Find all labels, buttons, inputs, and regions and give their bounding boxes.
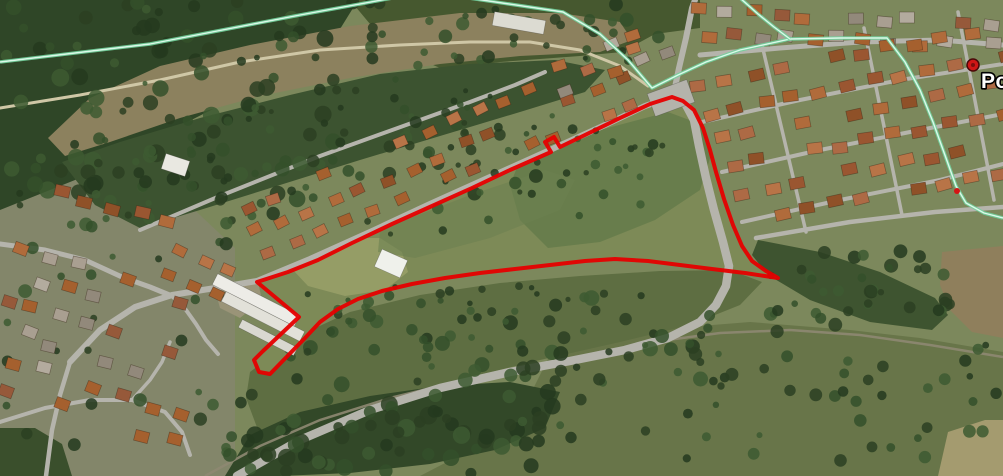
tree: [362, 447, 375, 460]
tree: [913, 250, 926, 263]
tree: [220, 237, 233, 250]
tree: [524, 458, 539, 473]
tree: [636, 200, 644, 208]
tree: [31, 163, 42, 174]
tree: [791, 300, 798, 307]
tree: [591, 160, 601, 170]
tree: [410, 116, 422, 128]
tree: [484, 216, 493, 225]
tree: [132, 158, 140, 166]
tree: [605, 348, 612, 355]
tree: [697, 331, 705, 339]
tree: [641, 426, 650, 435]
tree: [584, 290, 600, 306]
tree: [16, 190, 23, 197]
tree: [614, 166, 622, 174]
tree: [340, 128, 348, 136]
tree: [771, 325, 784, 338]
tree: [414, 416, 426, 428]
tree: [757, 432, 763, 438]
tree: [188, 133, 196, 141]
tree: [863, 375, 874, 386]
tree: [333, 422, 343, 432]
tree: [703, 324, 712, 333]
tree: [517, 346, 528, 357]
house: [877, 16, 893, 28]
tree: [416, 298, 426, 308]
tree: [200, 53, 207, 60]
house: [911, 125, 928, 138]
tree: [203, 107, 220, 124]
tree: [245, 463, 257, 475]
tree: [504, 369, 517, 382]
house: [759, 95, 775, 108]
tree: [36, 154, 46, 164]
tree: [582, 45, 591, 54]
tree: [473, 313, 482, 322]
tree: [464, 105, 470, 111]
tree: [456, 17, 469, 30]
tree: [624, 351, 634, 361]
tree: [704, 310, 715, 321]
tree: [223, 448, 237, 462]
tree: [211, 165, 225, 179]
tree: [155, 8, 163, 16]
tree: [365, 41, 377, 53]
tree: [276, 40, 288, 52]
tree: [476, 8, 487, 19]
tree: [583, 56, 588, 61]
tree: [194, 65, 209, 80]
house: [991, 168, 1003, 181]
tree: [338, 105, 344, 111]
tree: [781, 350, 793, 362]
tree: [302, 184, 309, 191]
tree: [211, 115, 216, 120]
tree: [312, 455, 326, 469]
tree: [517, 189, 522, 194]
tree: [877, 391, 886, 400]
tree: [442, 414, 451, 423]
tree: [237, 57, 246, 66]
house: [691, 2, 707, 14]
tree: [524, 131, 530, 137]
tree: [834, 454, 847, 467]
house: [884, 126, 900, 139]
tree: [429, 389, 442, 402]
tree: [406, 324, 417, 335]
tree: [234, 167, 248, 181]
tree: [977, 425, 989, 437]
tree: [428, 363, 435, 370]
tree: [854, 414, 867, 427]
tree: [878, 289, 884, 295]
tree: [963, 425, 976, 438]
tree: [674, 368, 682, 376]
tree: [557, 179, 567, 189]
house: [748, 152, 764, 165]
tree: [886, 443, 895, 452]
tree: [355, 171, 365, 181]
tree: [435, 336, 450, 351]
tree: [246, 116, 252, 122]
tree: [86, 398, 98, 410]
tree: [420, 48, 428, 56]
placemark-icon-core: [971, 63, 975, 67]
house: [986, 37, 1002, 49]
house: [798, 201, 815, 214]
tree: [550, 113, 555, 118]
tree: [251, 104, 259, 112]
tree: [335, 138, 345, 148]
tree: [685, 339, 694, 348]
tree: [838, 386, 849, 397]
place-label: Por: [981, 70, 1003, 93]
tree: [451, 98, 458, 105]
tree: [510, 33, 519, 42]
tree: [939, 373, 951, 385]
tree: [14, 95, 29, 110]
tree: [973, 344, 984, 355]
tree: [419, 335, 428, 344]
tree: [544, 398, 561, 415]
tree: [439, 226, 447, 234]
tree: [291, 373, 302, 384]
house: [955, 17, 971, 29]
tree: [352, 87, 359, 94]
house: [689, 80, 705, 93]
tree: [858, 250, 869, 261]
tree: [363, 309, 376, 322]
tree: [79, 11, 93, 25]
tree: [21, 428, 32, 439]
house: [906, 39, 922, 52]
tree: [322, 394, 333, 405]
tree: [619, 313, 631, 325]
tree: [461, 120, 467, 126]
tree: [247, 449, 258, 460]
tree: [414, 378, 422, 386]
tree: [365, 304, 370, 309]
tree: [664, 342, 678, 356]
tree: [563, 169, 571, 177]
tree: [216, 143, 230, 157]
tree: [220, 217, 232, 229]
tree: [73, 42, 82, 51]
tree: [509, 177, 521, 189]
house: [782, 90, 798, 103]
tree: [307, 155, 320, 168]
tree: [288, 436, 304, 452]
tree: [261, 447, 277, 463]
tree: [422, 352, 432, 362]
tree: [275, 425, 285, 435]
tree: [436, 289, 445, 298]
house: [910, 182, 926, 195]
tree: [503, 390, 516, 403]
tree: [725, 368, 738, 381]
tree: [332, 86, 341, 95]
tree: [933, 305, 945, 317]
tree: [576, 212, 583, 219]
house: [716, 74, 733, 87]
tree: [456, 162, 461, 167]
tree: [207, 125, 221, 139]
tree: [488, 94, 493, 99]
tree: [573, 364, 580, 371]
tree: [364, 406, 376, 418]
tree: [280, 155, 292, 167]
tree: [305, 291, 311, 297]
tree: [385, 410, 400, 425]
tree: [269, 109, 274, 114]
house: [873, 102, 889, 115]
tree: [365, 420, 376, 431]
tree: [378, 30, 386, 38]
tree: [759, 364, 769, 374]
tree: [819, 288, 828, 297]
house: [765, 182, 782, 196]
tree: [183, 116, 193, 126]
tree: [702, 432, 711, 441]
tree: [176, 335, 188, 347]
tree: [557, 331, 570, 344]
tree: [923, 383, 933, 393]
tree: [327, 74, 339, 86]
tree: [620, 13, 634, 27]
tree: [894, 244, 908, 258]
tree: [967, 373, 974, 380]
tree: [403, 127, 410, 134]
tree: [807, 275, 816, 284]
tree: [549, 299, 562, 312]
tree: [693, 372, 708, 387]
tree: [580, 328, 587, 335]
tree: [390, 94, 399, 103]
tree: [468, 334, 475, 341]
tree: [3, 402, 11, 410]
tree: [392, 76, 398, 82]
tree: [422, 448, 434, 460]
tree: [336, 459, 353, 476]
tree: [453, 427, 470, 444]
tree: [187, 149, 196, 158]
tree: [451, 52, 458, 59]
tree: [215, 194, 226, 205]
tree: [982, 342, 989, 349]
tree: [463, 88, 468, 93]
house: [901, 96, 918, 109]
tree: [380, 439, 393, 452]
tree: [304, 348, 312, 356]
tree: [504, 419, 516, 431]
tree: [920, 263, 931, 274]
tree: [195, 389, 202, 396]
house: [788, 176, 805, 190]
tree: [593, 373, 605, 385]
map-layers: [0, 0, 1003, 476]
tree: [136, 20, 152, 36]
tree: [833, 285, 844, 296]
tree: [274, 31, 284, 41]
tree: [439, 30, 453, 44]
tree: [287, 187, 296, 196]
house: [969, 113, 986, 126]
tree: [228, 11, 243, 26]
tree: [584, 170, 589, 175]
tree: [445, 286, 454, 295]
tree: [367, 53, 379, 65]
tree: [638, 292, 645, 299]
tree: [86, 221, 98, 233]
tree: [262, 162, 272, 172]
tree: [591, 306, 601, 316]
tree: [689, 347, 702, 360]
tree: [4, 319, 12, 327]
house: [853, 49, 869, 62]
tree: [525, 360, 541, 376]
tree: [68, 149, 85, 166]
tree: [246, 426, 263, 443]
tree: [468, 364, 481, 377]
house: [794, 116, 811, 130]
tree: [543, 42, 550, 49]
tree: [843, 306, 853, 316]
tree: [303, 128, 317, 142]
tree: [235, 397, 247, 409]
tree: [86, 269, 97, 280]
house: [919, 64, 935, 77]
tree: [462, 13, 468, 19]
tree: [575, 394, 587, 406]
tree: [919, 451, 931, 463]
tree: [959, 355, 971, 367]
tree: [939, 293, 953, 307]
house: [964, 27, 980, 40]
tree: [119, 108, 126, 115]
tree: [18, 284, 32, 298]
tree: [110, 58, 119, 67]
house: [727, 160, 744, 173]
tree: [46, 42, 55, 51]
tree: [904, 302, 916, 314]
satellite-map[interactable]: Por: [0, 0, 1003, 476]
tree: [90, 106, 102, 118]
tree: [772, 305, 783, 316]
tree: [428, 405, 441, 418]
house: [807, 142, 823, 155]
tree: [540, 384, 556, 400]
tree: [144, 145, 156, 157]
tree: [683, 409, 693, 419]
tree: [594, 144, 602, 152]
tree: [797, 265, 807, 275]
tree: [27, 176, 43, 192]
tree: [343, 165, 355, 177]
tree: [713, 402, 719, 408]
house: [702, 32, 718, 44]
tree: [809, 388, 822, 401]
tree: [467, 301, 473, 307]
tree: [103, 215, 110, 222]
tree: [467, 307, 475, 315]
house: [773, 61, 790, 75]
tree: [60, 57, 73, 70]
tree: [645, 148, 654, 157]
tree: [155, 255, 162, 262]
tree: [226, 431, 237, 442]
house: [726, 27, 742, 40]
tree: [165, 114, 175, 124]
tree: [518, 417, 527, 426]
tree: [84, 347, 91, 354]
tree: [659, 143, 665, 149]
tree: [413, 61, 422, 70]
tree: [914, 434, 922, 442]
tree: [70, 140, 79, 149]
tree: [287, 414, 302, 429]
tree: [851, 396, 862, 407]
tree: [553, 346, 568, 361]
tree: [312, 54, 320, 62]
waypoint-dot: [954, 188, 960, 194]
tree: [327, 326, 339, 338]
tree: [367, 31, 378, 42]
tree: [393, 427, 405, 439]
tree: [257, 199, 266, 208]
house: [832, 142, 848, 155]
tree: [194, 413, 207, 426]
tree: [515, 282, 523, 290]
tree: [828, 318, 842, 332]
house: [857, 132, 873, 145]
house: [931, 31, 948, 44]
google-earth-canvas: Por: [0, 0, 1003, 476]
tree: [864, 299, 873, 308]
tree: [152, 80, 168, 96]
tree: [51, 69, 69, 87]
tree: [223, 116, 232, 125]
tree: [476, 189, 483, 196]
tree: [717, 382, 724, 389]
tree: [254, 55, 260, 61]
tree: [364, 218, 371, 225]
tree: [400, 105, 409, 114]
tree: [321, 119, 328, 126]
tree: [715, 351, 722, 358]
tree: [784, 385, 795, 396]
tree: [623, 164, 629, 170]
tree: [609, 138, 616, 145]
tree: [143, 95, 158, 110]
tree: [317, 30, 334, 47]
tree: [534, 291, 540, 297]
tree: [71, 68, 88, 85]
tree: [938, 269, 950, 281]
tree: [292, 156, 307, 171]
tree: [969, 397, 978, 406]
tree: [139, 175, 152, 188]
house: [794, 13, 810, 25]
tree: [143, 81, 148, 86]
tree: [565, 432, 576, 443]
tree: [532, 411, 547, 426]
tree: [493, 438, 510, 455]
tree: [532, 435, 545, 448]
tree: [266, 125, 275, 134]
tree: [207, 157, 214, 164]
house: [848, 13, 863, 24]
